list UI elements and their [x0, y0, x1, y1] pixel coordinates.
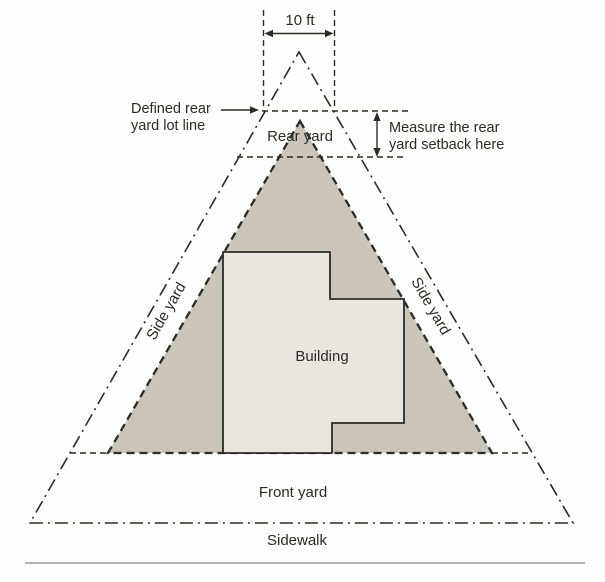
dimension-label: 10 ft [285, 12, 315, 29]
measure-setback-label-line1: Measure the rear [389, 120, 500, 136]
front-yard-label: Front yard [259, 484, 327, 501]
defined-rear-label-line1: Defined rear [131, 101, 211, 117]
zoning-setback-figure: 10 ft Defined rear yard lot line Rear ya… [0, 0, 605, 577]
defined-rear-label-line2: yard lot line [131, 118, 205, 134]
rear-yard-label: Rear yard [267, 128, 333, 145]
measure-setback-label-line2: yard setback here [389, 137, 504, 153]
zoning-setback-diagram: 10 ft Defined rear yard lot line Rear ya… [0, 0, 605, 577]
building-label: Building [295, 348, 348, 365]
sidewalk-label: Sidewalk [267, 532, 328, 549]
